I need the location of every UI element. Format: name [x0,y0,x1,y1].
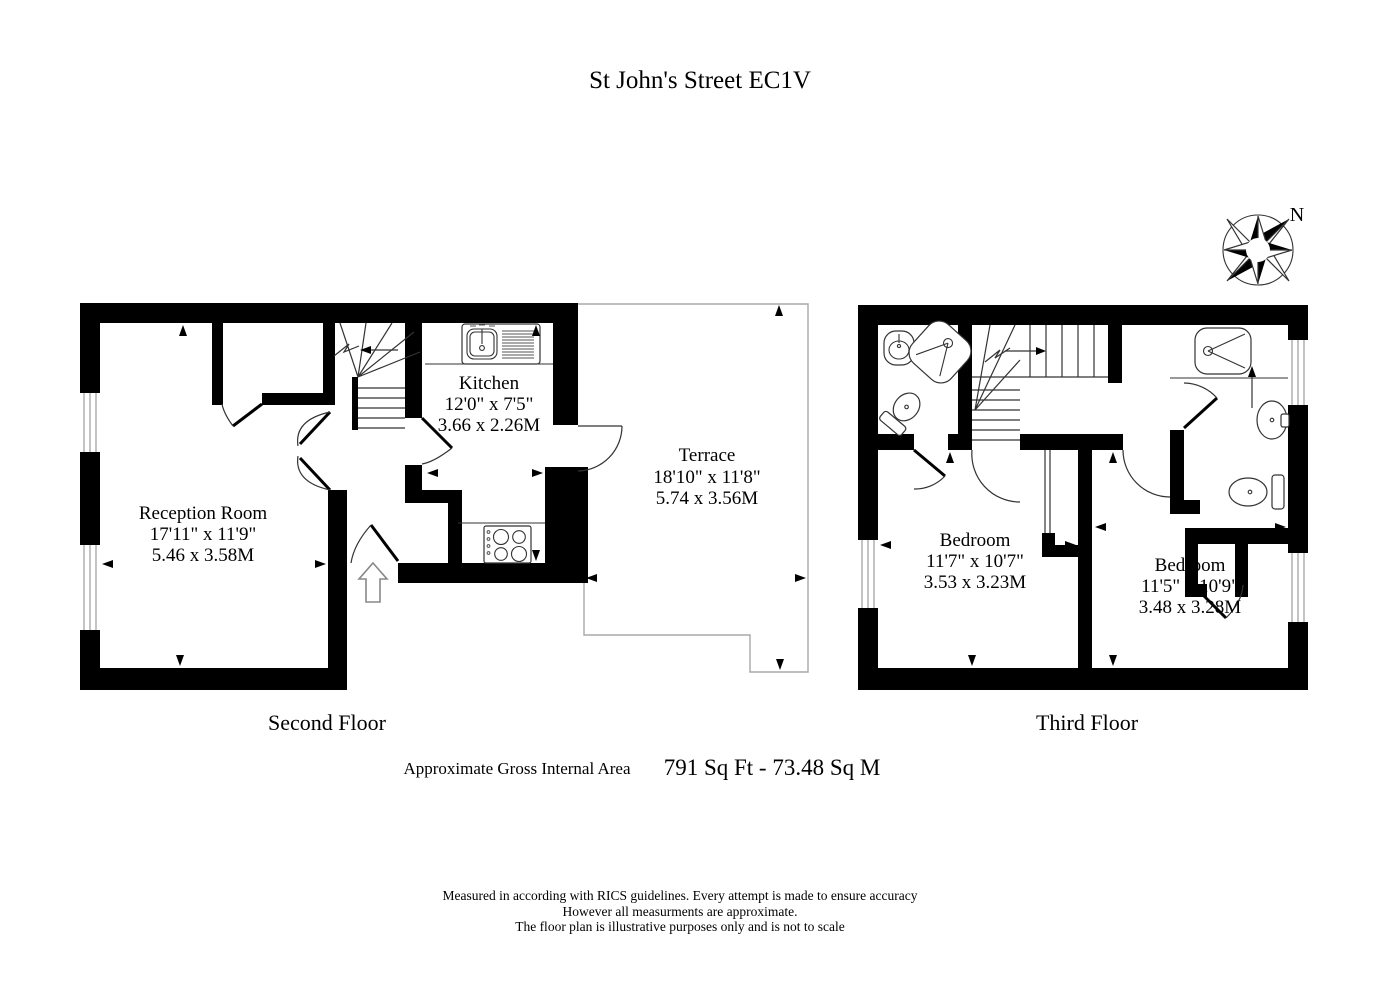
dimension-arrow-vertical [1248,366,1256,408]
disclaimer-line-2: However all measurments are approximate. [562,904,797,919]
room-label-bedroom2-metric: 3.48 x 3.28M [1139,597,1242,618]
pocket-door-lines [1045,450,1050,533]
room-label-reception-imperial: 17'11" x 11'9" [150,524,256,545]
disclaimer: Measured in according with RICS guidelin… [443,888,918,934]
room-label-terrace-name: Terrace [679,445,736,466]
room-label-kitchen-imperial: 12'0" x 7'5" [445,394,534,415]
toilet-icon [1229,475,1284,509]
floor-label-third: Third Floor [1036,710,1139,735]
entrance-arrow-icon [359,563,387,602]
page-title: St John's Street EC1V [589,67,811,94]
gross-area-label: Approximate Gross Internal Area [403,759,631,778]
hob-icon [458,523,545,563]
room-label-bedroom2-name: Bedroom [1155,555,1226,576]
room-label-bedroom1-metric: 3.53 x 3.23M [924,572,1027,593]
room-label-reception-name: Reception Room [139,503,267,524]
room-label-kitchen-name: Kitchen [459,373,520,394]
compass-icon: N [1223,204,1304,285]
stairs-icon [972,325,1108,440]
shower-icon [1170,328,1288,378]
disclaimer-line-3: The floor plan is illustrative purposes … [515,919,845,934]
gross-area-value: 791 Sq Ft - 73.48 Sq M [664,755,881,780]
bathroom-basin-icon [1257,401,1289,439]
room-label-bedroom2-imperial: 11'5" x 10'9" [1141,576,1239,597]
kitchen-sink-icon [425,324,553,364]
floorplan-page: St John's Street EC1V N [0,0,1400,989]
room-label-bedroom1-name: Bedroom [940,530,1011,551]
room-label-terrace-imperial: 18'10" x 11'8" [653,467,760,488]
compass-north-label: N [1290,204,1304,226]
disclaimer-line-1: Measured in according with RICS guidelin… [443,888,918,903]
floorplan-svg: St John's Street EC1V N [0,0,1400,989]
room-label-kitchen-metric: 3.66 x 2.26M [438,415,541,436]
room-label-bedroom1-imperial: 11'7" x 10'7" [926,551,1024,572]
room-label-reception-metric: 5.46 x 3.58M [152,545,255,566]
floor-label-second: Second Floor [268,710,387,735]
third-floor-plan: Bedroom 11'7" x 10'7" 3.53 x 3.23M Bedro… [858,305,1308,735]
room-label-terrace-metric: 5.74 x 3.56M [656,488,759,509]
toilet-icon [878,386,926,436]
second-floor-plan: Reception Room 17'11" x 11'9" 5.46 x 3.5… [80,303,808,735]
